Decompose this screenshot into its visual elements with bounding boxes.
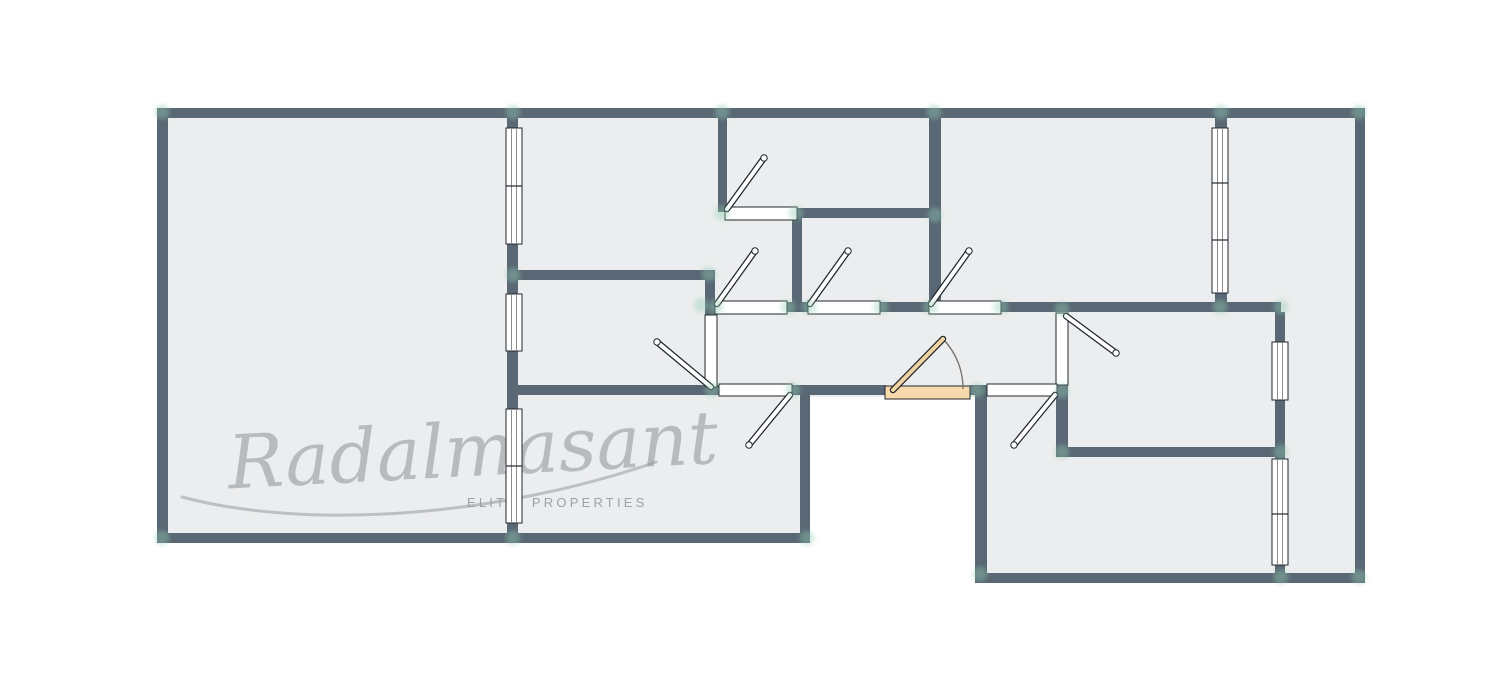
door-opening [719, 384, 792, 396]
junction-marker [994, 300, 1009, 315]
junction-marker [973, 567, 988, 582]
door-leaf-cap [654, 339, 660, 345]
window-frame [1212, 128, 1228, 293]
junction-marker [1214, 105, 1229, 120]
junction-marker [1274, 300, 1289, 315]
window [506, 294, 522, 351]
junction-marker [1213, 300, 1228, 315]
junction-marker [715, 105, 730, 120]
junction-marker [1274, 445, 1289, 460]
junction-marker [802, 300, 817, 315]
junction-marker [1352, 570, 1367, 585]
door-opening [929, 301, 1001, 314]
junction-marker [1352, 105, 1367, 120]
window [1272, 342, 1288, 400]
junction-marker [786, 383, 801, 398]
junction-marker [789, 206, 804, 221]
junction-marker [928, 208, 943, 223]
junction-marker [1055, 302, 1070, 317]
junction-marker [506, 531, 521, 546]
door-leaf-cap [1113, 350, 1119, 356]
wall-segment [792, 218, 802, 306]
junction-marker [709, 300, 724, 315]
door-opening [715, 301, 787, 314]
junction-marker [970, 383, 985, 398]
junction-marker [702, 267, 717, 282]
junction-marker [1055, 384, 1070, 399]
room-floors-layer [165, 112, 1360, 578]
door-leaf-cap [966, 248, 972, 254]
junction-marker [506, 105, 521, 120]
junction-marker [923, 300, 938, 315]
floorplan-canvas: Radalmasant ELITE PROPERTIES [0, 0, 1493, 673]
wall-segment [157, 533, 810, 543]
door-opening [987, 384, 1057, 396]
junction-marker [874, 300, 889, 315]
door-leaf-cap [845, 248, 851, 254]
window [506, 409, 522, 523]
wall-segment [1000, 302, 1281, 312]
door-opening [725, 207, 797, 220]
wall-segment [929, 108, 941, 304]
window [1212, 128, 1228, 293]
watermark-subtitle: ELITE PROPERTIES [467, 495, 648, 510]
wall-segment [718, 108, 727, 212]
wall-segment [1056, 447, 1285, 457]
door-leaf-cap [752, 248, 758, 254]
window-frame [1272, 342, 1288, 400]
junction-marker [1274, 570, 1289, 585]
door-leaf-cap [1011, 442, 1017, 448]
door-opening [705, 315, 717, 387]
room-floor [810, 112, 975, 397]
wall-segment [797, 208, 932, 218]
wall-segment [1275, 312, 1285, 342]
door-opening [1056, 313, 1068, 385]
window-frame [506, 294, 522, 351]
wall-segment [975, 573, 1365, 583]
window-frame [1272, 459, 1288, 565]
wall-segment [157, 108, 1365, 118]
wall-segment [507, 385, 719, 395]
wall-segment [792, 385, 886, 395]
junction-marker [155, 105, 170, 120]
junction-marker [781, 300, 796, 315]
window [506, 128, 522, 244]
junction-marker [800, 531, 815, 546]
wall-segment [975, 395, 987, 578]
floor-plan-drawing: Radalmasant ELITE PROPERTIES [0, 0, 1493, 673]
junction-marker [1055, 445, 1070, 460]
wall-segment [800, 395, 810, 543]
junction-marker [506, 268, 521, 283]
junction-marker [155, 531, 170, 546]
room-floor [975, 112, 1360, 578]
junction-marker [694, 298, 709, 313]
door-leaf-cap [761, 155, 767, 161]
wall-segment [507, 351, 518, 409]
junction-marker [927, 105, 942, 120]
wall-segment [507, 270, 715, 280]
door-leaf-cap [746, 442, 752, 448]
junction-marker [715, 206, 730, 221]
wall-segment [1355, 108, 1365, 583]
wall-segment [157, 108, 168, 543]
window [1272, 459, 1288, 565]
door-opening [808, 301, 880, 314]
junction-marker [705, 383, 720, 398]
